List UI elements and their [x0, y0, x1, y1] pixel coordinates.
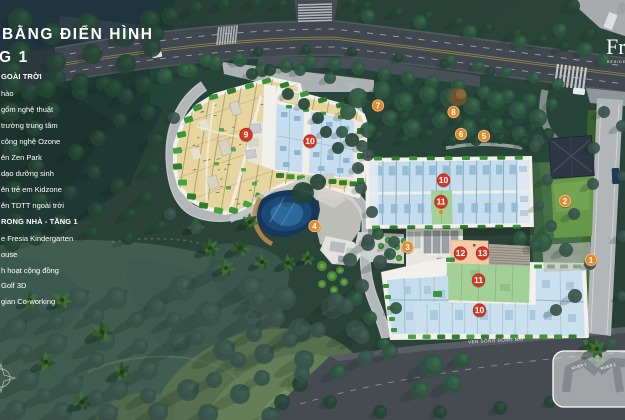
svg-text:7: 7 [376, 101, 381, 110]
svg-text:11: 11 [474, 275, 483, 285]
svg-text:2: 2 [563, 197, 568, 206]
svg-text:11: 11 [436, 197, 445, 207]
svg-text:9: 9 [244, 130, 249, 140]
svg-text:12: 12 [456, 248, 466, 258]
svg-text:10: 10 [305, 136, 315, 146]
svg-text:6: 6 [459, 130, 464, 139]
svg-text:8: 8 [451, 108, 456, 117]
svg-text:10: 10 [475, 305, 485, 315]
svg-text:13: 13 [478, 248, 488, 258]
svg-text:10: 10 [439, 175, 449, 185]
svg-text:3: 3 [405, 243, 410, 252]
svg-text:1: 1 [589, 256, 594, 265]
svg-text:5: 5 [482, 132, 487, 141]
svg-text:4: 4 [312, 222, 317, 231]
